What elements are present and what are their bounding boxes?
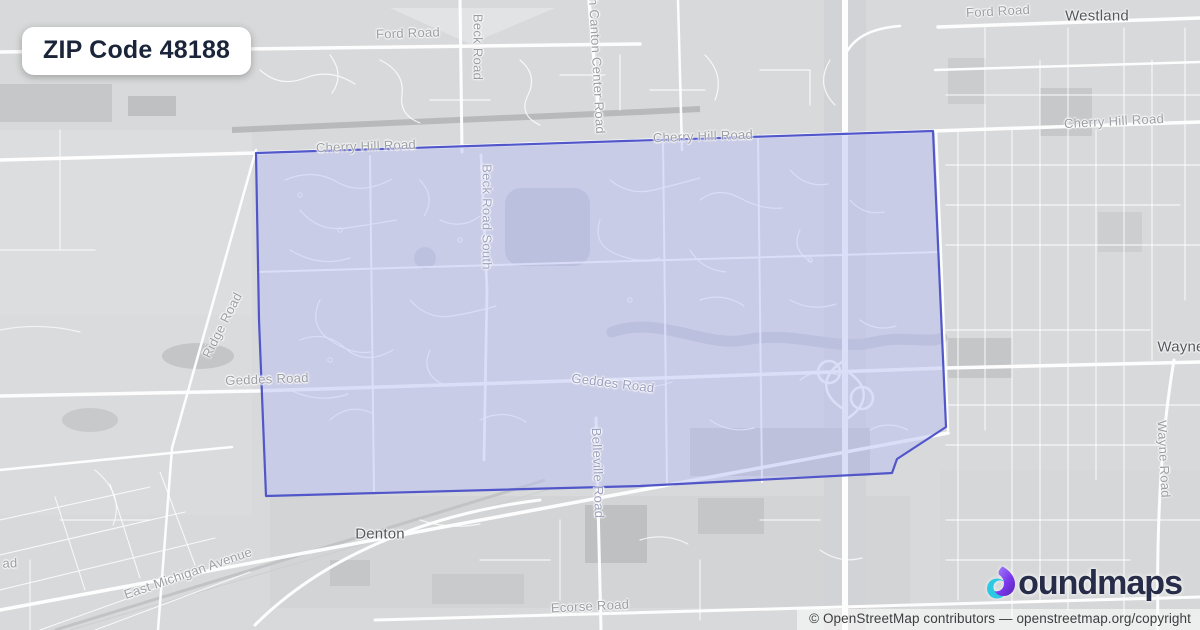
boundmaps-logo-text: oundmaps <box>1018 564 1182 603</box>
map-canvas <box>0 0 1200 630</box>
zip-code-badge-title: ZIP Code 48188 <box>43 36 230 64</box>
boundmaps-logo: oundmaps <box>986 564 1182 603</box>
zip-code-badge: ZIP Code 48188 <box>22 27 251 75</box>
boundmaps-logo-icon <box>986 566 1017 601</box>
osm-attribution: © OpenStreetMap contributors — openstree… <box>797 609 1200 630</box>
zip-code-map-card: { "badge": { "title": "ZIP Code 48188" }… <box>0 0 1200 630</box>
zip-boundary-polygon <box>256 131 946 496</box>
